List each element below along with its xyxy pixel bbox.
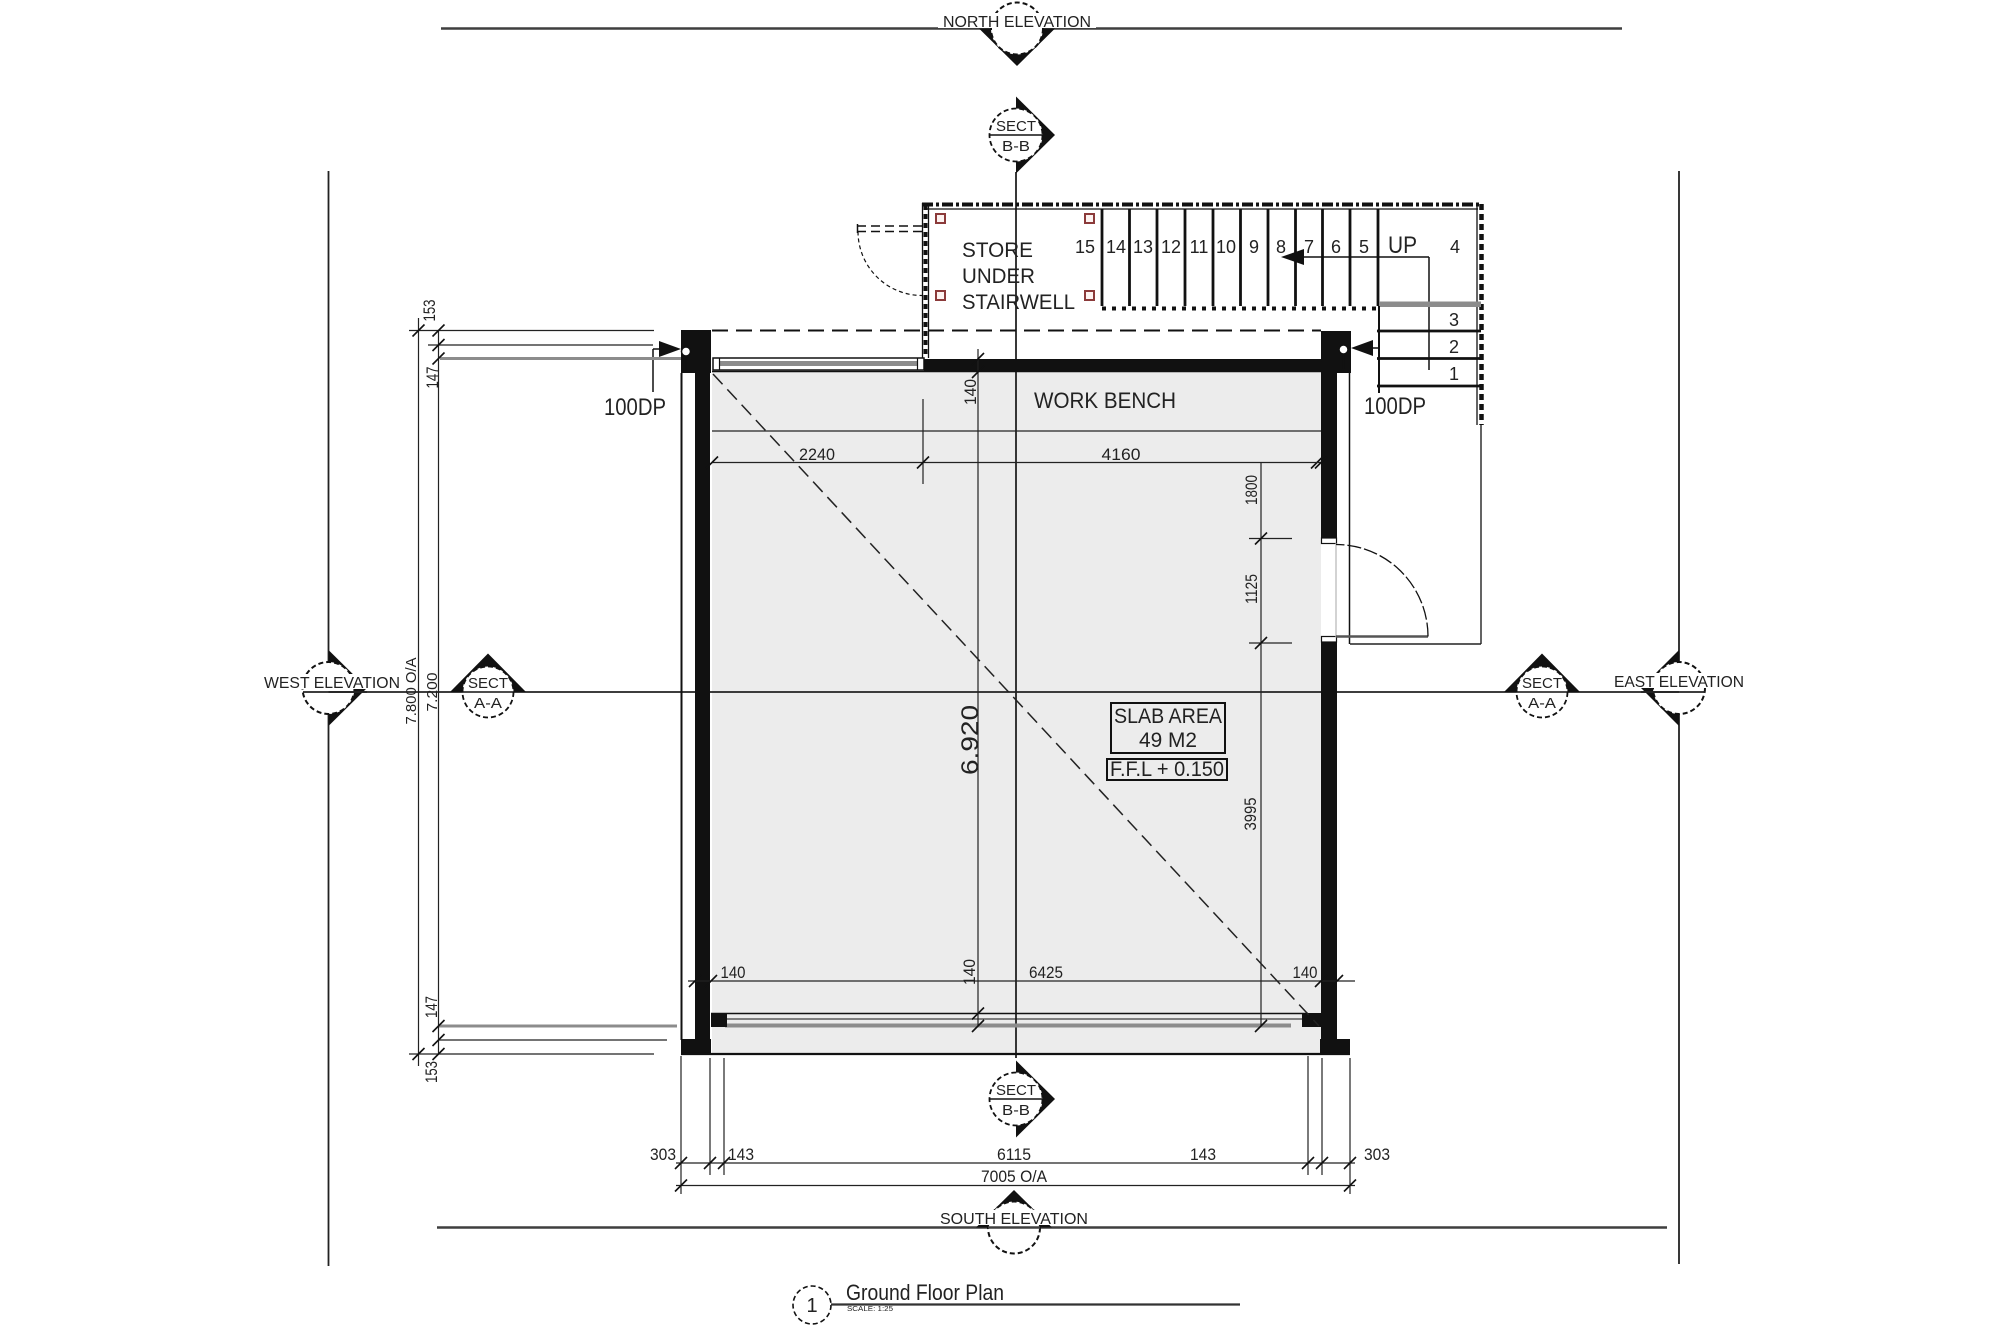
svg-text:UP: UP: [1388, 232, 1417, 259]
svg-text:A-A: A-A: [1528, 695, 1556, 712]
svg-text:100DP: 100DP: [604, 394, 666, 421]
svg-text:12: 12: [1161, 237, 1181, 257]
svg-text:15: 15: [1075, 237, 1095, 257]
svg-text:10: 10: [1216, 237, 1236, 257]
svg-text:WEST ELEVATION: WEST ELEVATION: [264, 675, 400, 692]
svg-text:1125: 1125: [1243, 574, 1261, 604]
svg-text:SOUTH ELEVATION: SOUTH ELEVATION: [940, 1211, 1088, 1228]
svg-text:6425: 6425: [1029, 964, 1063, 982]
svg-text:SECT: SECT: [1522, 675, 1562, 692]
svg-text:303: 303: [1364, 1146, 1390, 1164]
svg-text:5: 5: [1359, 237, 1369, 257]
svg-text:153: 153: [421, 300, 439, 322]
svg-text:EAST ELEVATION: EAST ELEVATION: [1614, 674, 1744, 691]
svg-text:140: 140: [721, 964, 746, 982]
svg-text:3: 3: [1449, 310, 1459, 330]
svg-text:153: 153: [423, 1061, 441, 1083]
svg-text:1: 1: [806, 1295, 817, 1317]
svg-text:6.920: 6.920: [957, 705, 984, 775]
svg-text:100DP: 100DP: [1364, 393, 1426, 420]
svg-text:B-B: B-B: [1002, 1102, 1030, 1119]
svg-text:13: 13: [1133, 237, 1153, 257]
svg-text:B-B: B-B: [1002, 138, 1030, 155]
svg-text:140: 140: [1293, 964, 1318, 982]
svg-text:7005 O/A: 7005 O/A: [981, 1168, 1047, 1186]
svg-text:14: 14: [1106, 237, 1126, 257]
svg-text:147: 147: [423, 996, 441, 1018]
svg-text:Ground Floor Plan: Ground Floor Plan: [846, 1280, 1004, 1305]
svg-text:4: 4: [1450, 237, 1460, 257]
svg-text:STAIRWELL: STAIRWELL: [962, 291, 1075, 314]
svg-text:49 M2: 49 M2: [1139, 729, 1197, 752]
svg-text:SECT: SECT: [996, 118, 1036, 135]
svg-text:SCALE: 1:25: SCALE: 1:25: [847, 1306, 893, 1313]
svg-text:1: 1: [1449, 364, 1459, 384]
svg-text:F.F.L + 0.150: F.F.L + 0.150: [1110, 758, 1224, 781]
svg-text:7.800 O/A: 7.800 O/A: [403, 658, 420, 725]
svg-text:4160: 4160: [1102, 446, 1141, 464]
svg-text:UNDER: UNDER: [962, 265, 1035, 288]
svg-text:8: 8: [1276, 237, 1286, 257]
svg-text:WORK BENCH: WORK BENCH: [1034, 388, 1176, 413]
svg-text:SECT: SECT: [468, 675, 508, 692]
svg-text:303: 303: [650, 1146, 676, 1164]
svg-text:STORE: STORE: [962, 239, 1033, 262]
svg-text:9: 9: [1249, 237, 1259, 257]
svg-text:143: 143: [1190, 1146, 1216, 1164]
svg-text:7.200: 7.200: [424, 673, 441, 712]
svg-text:2: 2: [1449, 337, 1459, 357]
svg-text:140: 140: [962, 379, 980, 405]
svg-text:A-A: A-A: [474, 695, 502, 712]
svg-text:7: 7: [1304, 237, 1314, 257]
svg-text:143: 143: [728, 1146, 754, 1164]
svg-text:SECT: SECT: [996, 1082, 1036, 1099]
svg-text:2240: 2240: [799, 446, 835, 464]
svg-text:NORTH ELEVATION: NORTH ELEVATION: [943, 14, 1091, 31]
svg-text:6: 6: [1331, 237, 1341, 257]
svg-text:147: 147: [424, 367, 442, 389]
svg-text:1800: 1800: [1243, 475, 1261, 505]
svg-text:SLAB AREA: SLAB AREA: [1114, 705, 1222, 728]
svg-text:3995: 3995: [1242, 798, 1260, 831]
svg-text:11: 11: [1190, 237, 1209, 257]
svg-text:6115: 6115: [997, 1146, 1031, 1164]
